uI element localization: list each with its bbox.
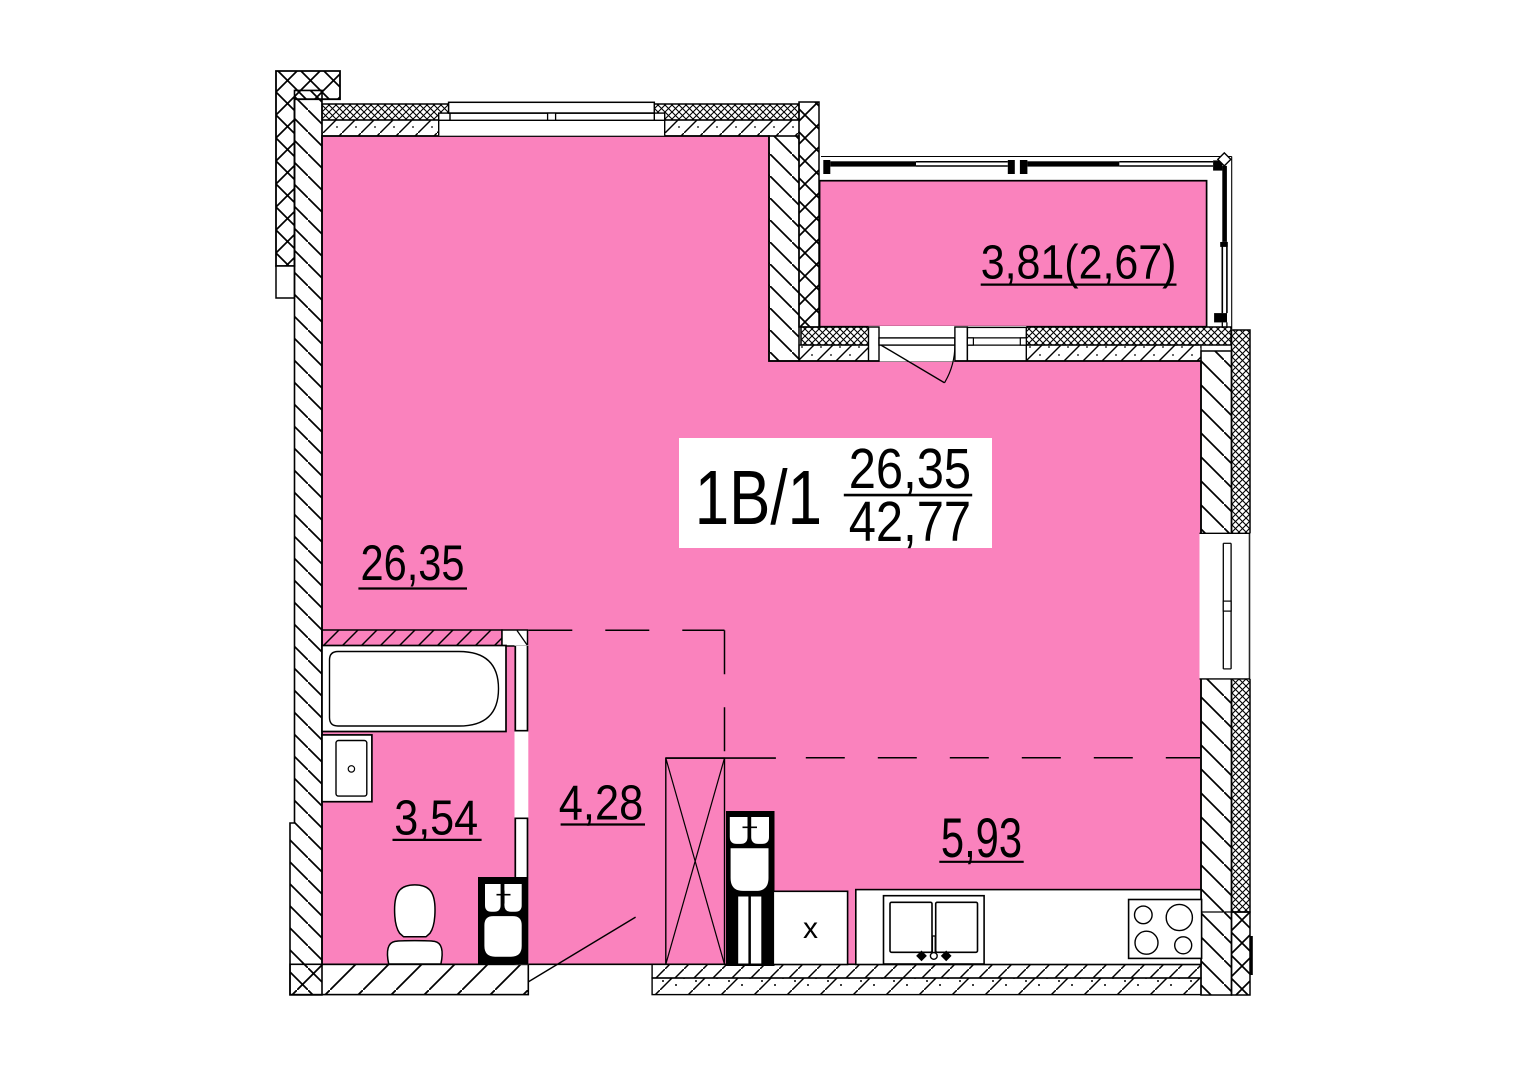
svg-text:3,81(2,67): 3,81(2,67) xyxy=(981,237,1177,290)
svg-text:1В/1: 1В/1 xyxy=(695,455,822,541)
svg-text:4,28: 4,28 xyxy=(559,776,643,830)
svg-text:x: x xyxy=(803,912,818,945)
svg-text:3,54: 3,54 xyxy=(394,791,478,845)
svg-text:26,35: 26,35 xyxy=(361,535,465,591)
svg-text:42,77: 42,77 xyxy=(849,490,971,554)
svg-text:5,93: 5,93 xyxy=(941,806,1022,869)
